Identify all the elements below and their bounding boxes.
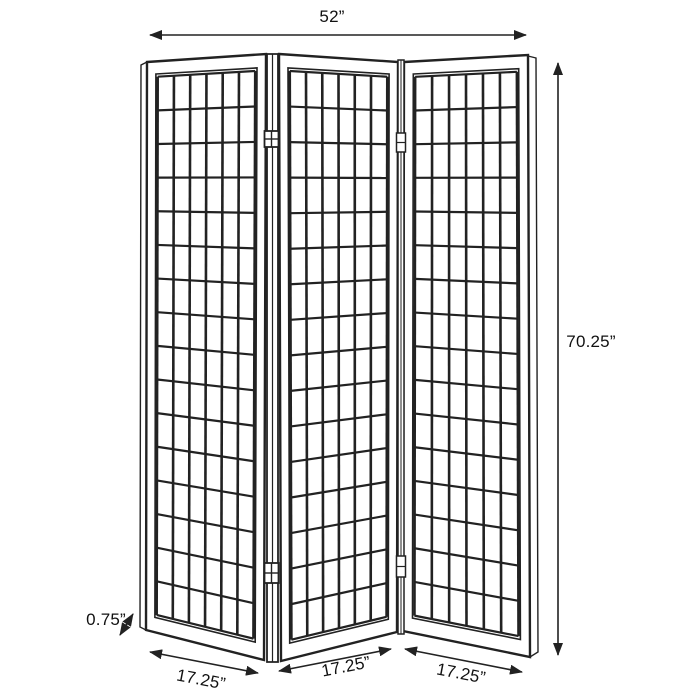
panel-left	[146, 54, 266, 660]
product-dimension-diagram: 52” 70.25” 0.75” 17.25” 17.25” 17.25”	[0, 0, 700, 700]
panel-center	[279, 54, 398, 661]
dimension-label-overall-width: 52”	[319, 7, 344, 27]
dimension-label-overall-height: 70.25”	[566, 332, 615, 352]
dimension-label-frame-thickness: 0.75”	[86, 610, 126, 630]
hinge-post-left	[265, 54, 279, 662]
panel-right	[403, 55, 530, 657]
hinge-post-right	[397, 60, 406, 634]
